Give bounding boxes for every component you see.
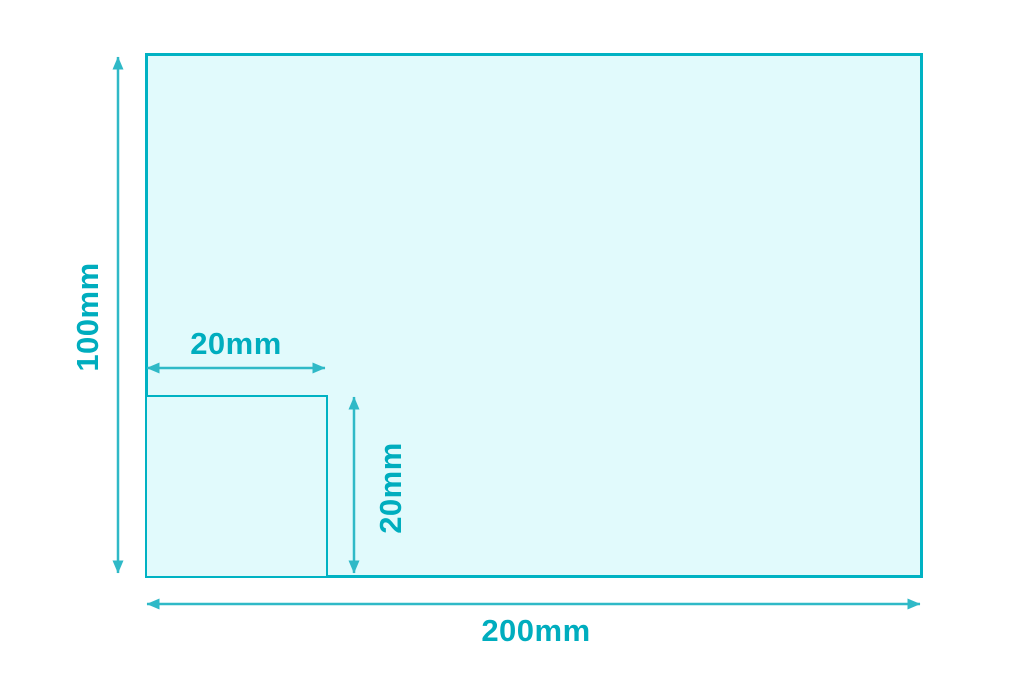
outer-height-label: 100mm: [70, 262, 106, 371]
inner-square-shape: [145, 395, 328, 578]
outer-width-label: 200mm: [481, 613, 590, 649]
inner-width-label: 20mm: [190, 326, 282, 362]
diagram-canvas: 100mm 200mm 20mm 20mm: [0, 0, 1024, 690]
inner-height-label: 20mm: [373, 442, 409, 534]
